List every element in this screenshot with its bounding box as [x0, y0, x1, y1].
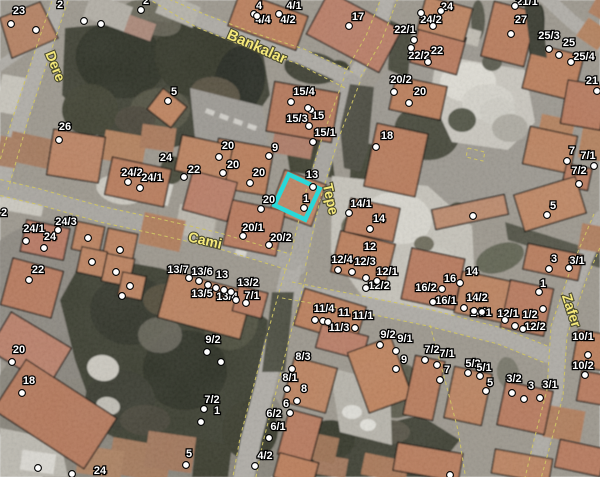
svg-text:17: 17: [352, 11, 364, 23]
svg-text:20: 20: [414, 86, 426, 98]
svg-text:4/1: 4/1: [286, 0, 301, 12]
svg-text:24: 24: [94, 465, 107, 477]
svg-text:27: 27: [515, 14, 527, 26]
svg-text:20: 20: [253, 167, 265, 179]
svg-text:1/2: 1/2: [522, 309, 537, 321]
svg-text:8: 8: [301, 383, 307, 395]
svg-text:5: 5: [550, 200, 556, 212]
svg-text:20: 20: [222, 140, 234, 152]
svg-text:7/1: 7/1: [580, 150, 595, 162]
svg-text:22: 22: [32, 264, 44, 276]
svg-text:13/7: 13/7: [167, 264, 188, 276]
svg-text:20/1: 20/1: [242, 222, 263, 234]
svg-text:14/2: 14/2: [466, 292, 487, 304]
svg-text:7: 7: [444, 364, 450, 376]
svg-text:13/2: 13/2: [237, 277, 258, 289]
svg-text:7/1: 7/1: [439, 348, 454, 360]
svg-text:24: 24: [44, 231, 57, 243]
svg-text:11/1: 11/1: [353, 310, 374, 322]
svg-text:24/1: 24/1: [141, 172, 162, 184]
svg-text:18: 18: [381, 130, 393, 142]
svg-text:21/1: 21/1: [516, 0, 537, 8]
svg-text:10/2: 10/2: [572, 360, 593, 372]
svg-text:5: 5: [171, 86, 177, 98]
svg-text:25: 25: [563, 37, 575, 49]
svg-text:14/1: 14/1: [350, 198, 371, 210]
svg-text:11: 11: [338, 307, 350, 319]
svg-text:16: 16: [444, 273, 456, 285]
svg-text:2: 2: [143, 0, 149, 7]
svg-text:12/4: 12/4: [331, 254, 353, 266]
svg-text:20: 20: [227, 159, 239, 171]
svg-text:9: 9: [272, 142, 278, 154]
svg-text:9/1: 9/1: [397, 333, 412, 345]
svg-text:3: 3: [551, 253, 557, 265]
svg-text:8/1: 8/1: [282, 372, 297, 384]
svg-text:20: 20: [263, 194, 275, 206]
svg-text:4/2: 4/2: [280, 14, 295, 26]
svg-text:3/2: 3/2: [506, 373, 521, 385]
svg-text:20: 20: [13, 344, 25, 356]
svg-text:2: 2: [57, 0, 63, 11]
svg-text:24/1: 24/1: [23, 223, 44, 235]
svg-text:18: 18: [23, 375, 35, 387]
svg-text:23: 23: [13, 5, 25, 17]
svg-text:24: 24: [160, 152, 173, 164]
svg-text:11/4: 11/4: [314, 303, 336, 315]
svg-text:12/1: 12/1: [376, 266, 397, 278]
svg-text:20/2: 20/2: [270, 232, 291, 244]
svg-text:6: 6: [283, 398, 289, 410]
svg-text:24/2: 24/2: [121, 167, 142, 179]
svg-text:11/3: 11/3: [329, 322, 350, 334]
svg-text:13: 13: [216, 269, 228, 281]
svg-text:3: 3: [528, 380, 534, 392]
svg-text:25/3: 25/3: [538, 30, 559, 42]
svg-text:22: 22: [431, 45, 443, 57]
svg-text:12/2: 12/2: [524, 321, 545, 333]
svg-text:3/1: 3/1: [542, 379, 557, 391]
svg-text:15/3: 15/3: [286, 113, 307, 125]
svg-text:25/4: 25/4: [573, 51, 595, 63]
svg-text:13: 13: [306, 169, 318, 181]
svg-text:21: 21: [586, 75, 598, 87]
svg-text:14: 14: [466, 266, 479, 278]
svg-text:6/2: 6/2: [266, 408, 281, 420]
svg-text:1: 1: [214, 405, 220, 417]
svg-text:6/1: 6/1: [270, 421, 285, 433]
svg-text:15/4: 15/4: [293, 86, 315, 98]
svg-text:22/1: 22/1: [394, 24, 415, 36]
svg-text:7/2: 7/2: [424, 344, 439, 356]
svg-text:12: 12: [364, 241, 376, 253]
svg-text:13/6: 13/6: [191, 266, 212, 278]
svg-text:1: 1: [303, 193, 309, 205]
svg-text:10/1: 10/1: [572, 331, 593, 343]
svg-text:9: 9: [401, 354, 407, 366]
svg-text:5/1: 5/1: [476, 362, 491, 374]
svg-text:15/1: 15/1: [314, 127, 335, 139]
svg-text:13/5: 13/5: [191, 288, 212, 300]
svg-text:5: 5: [487, 377, 493, 389]
svg-text:22: 22: [188, 164, 200, 176]
svg-text:7: 7: [569, 145, 575, 157]
svg-text:26: 26: [59, 121, 71, 133]
svg-text:7/2: 7/2: [571, 165, 586, 177]
svg-text:4: 4: [256, 0, 263, 12]
svg-text:9/2: 9/2: [380, 329, 395, 341]
svg-text:16/1: 16/1: [435, 295, 456, 307]
svg-text:8/3: 8/3: [295, 351, 310, 363]
svg-text:5: 5: [186, 448, 192, 460]
svg-text:14: 14: [373, 213, 386, 225]
svg-text:1: 1: [540, 278, 546, 290]
svg-text:20/2: 20/2: [390, 74, 411, 86]
svg-text:12/3: 12/3: [354, 256, 375, 268]
svg-text:16/2: 16/2: [415, 282, 436, 294]
svg-text:9/2: 9/2: [205, 334, 220, 346]
svg-text:2: 2: [1, 207, 7, 219]
svg-text:4/2: 4/2: [257, 450, 272, 462]
